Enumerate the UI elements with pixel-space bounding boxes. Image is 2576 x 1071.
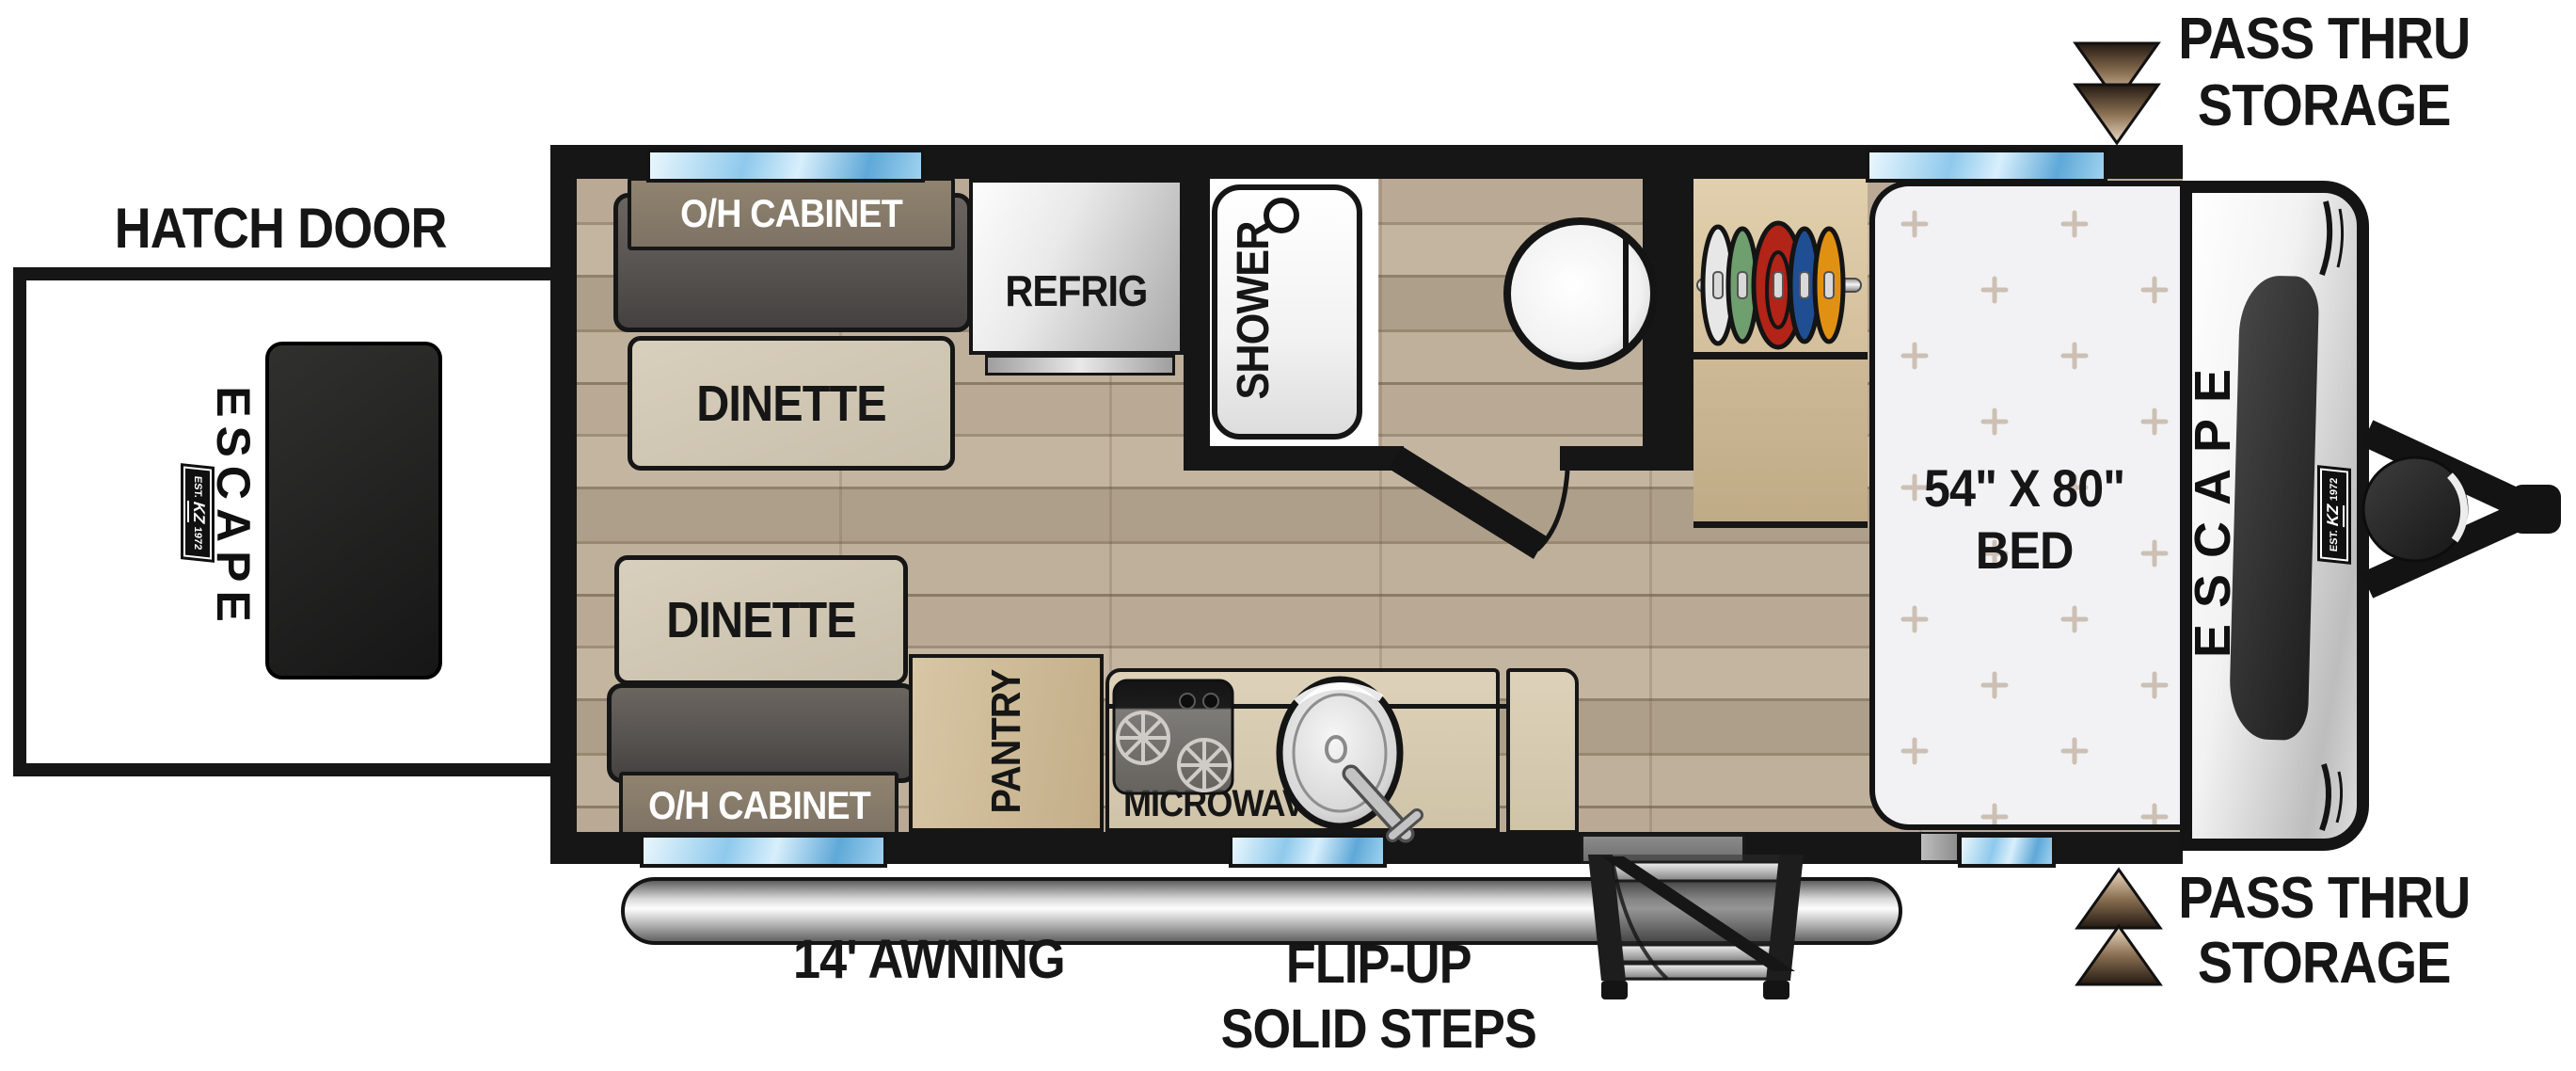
trailer-wall-left xyxy=(550,145,577,864)
microwave-label: MICROWAVE xyxy=(1112,783,1315,825)
oh-cabinet-bottom: O/H CABINET xyxy=(619,772,898,839)
escape-logo-right: ESCAPE xyxy=(2186,289,2240,722)
hitch-coupler-icon xyxy=(2510,485,2561,534)
bed-size-text: 54" X 80" xyxy=(1924,457,2124,520)
wardrobe-divider xyxy=(1693,352,1868,360)
window-top-left xyxy=(646,149,925,183)
wardrobe-upper xyxy=(1693,172,1868,355)
bed-text: BED xyxy=(1976,520,2074,582)
kz-badge-right: EST.KZ1972 xyxy=(2320,468,2348,561)
dinette-table-bottom: DINETTE xyxy=(614,555,908,685)
hitch-icon xyxy=(2363,433,2561,585)
window-bottom-left xyxy=(640,834,887,868)
window-top-right xyxy=(1866,149,2107,183)
pass-thru-storage-bottom-label: PASS THRU STORAGE xyxy=(2117,866,2531,996)
bathroom-wall-left xyxy=(1184,145,1210,471)
side-counter xyxy=(1506,668,1579,834)
shower-label: SHOWER xyxy=(1231,179,1276,442)
kz-badge-left: EST.KZ1972 xyxy=(183,466,212,559)
refrigerator-base xyxy=(985,355,1175,376)
window-bottom-kitchen xyxy=(1229,834,1387,868)
pantry-label: PANTRY xyxy=(985,647,1028,836)
hatch-door-panel xyxy=(265,342,442,679)
awning-label: 14' AWNING xyxy=(731,928,1126,991)
propane-cover xyxy=(2229,275,2320,741)
dinette-table-top: DINETTE xyxy=(628,336,955,471)
propane-tank-icon xyxy=(2363,457,2467,561)
refrigerator: REFRIG xyxy=(969,179,1184,355)
hatch-door-label: HATCH DOOR xyxy=(83,196,478,261)
bed-label: 54" X 80" BED xyxy=(1874,457,2175,582)
escape-logo-left: ESCAPE xyxy=(207,353,260,663)
window-bottom-right xyxy=(1958,834,2056,868)
bottom-wall-silver-panel xyxy=(1921,834,1957,860)
entry-door xyxy=(1581,834,1745,864)
dinette-bench-bottom xyxy=(607,683,917,783)
wardrobe-lower xyxy=(1693,360,1868,528)
pass-thru-storage-top-label: PASS THRU STORAGE xyxy=(2117,6,2531,139)
bathroom-wall-right xyxy=(1643,145,1693,471)
floorplan-canvas: HATCH DOOR ESCAPE EST.KZ1972 54" X 80 xyxy=(0,0,2576,1071)
flip-up-steps-label: FLIP-UP SOLID STEPS xyxy=(1110,932,1646,1062)
bathroom-wall-bottom-left xyxy=(1184,446,1404,471)
oh-cabinet-top: O/H CABINET xyxy=(628,177,955,250)
